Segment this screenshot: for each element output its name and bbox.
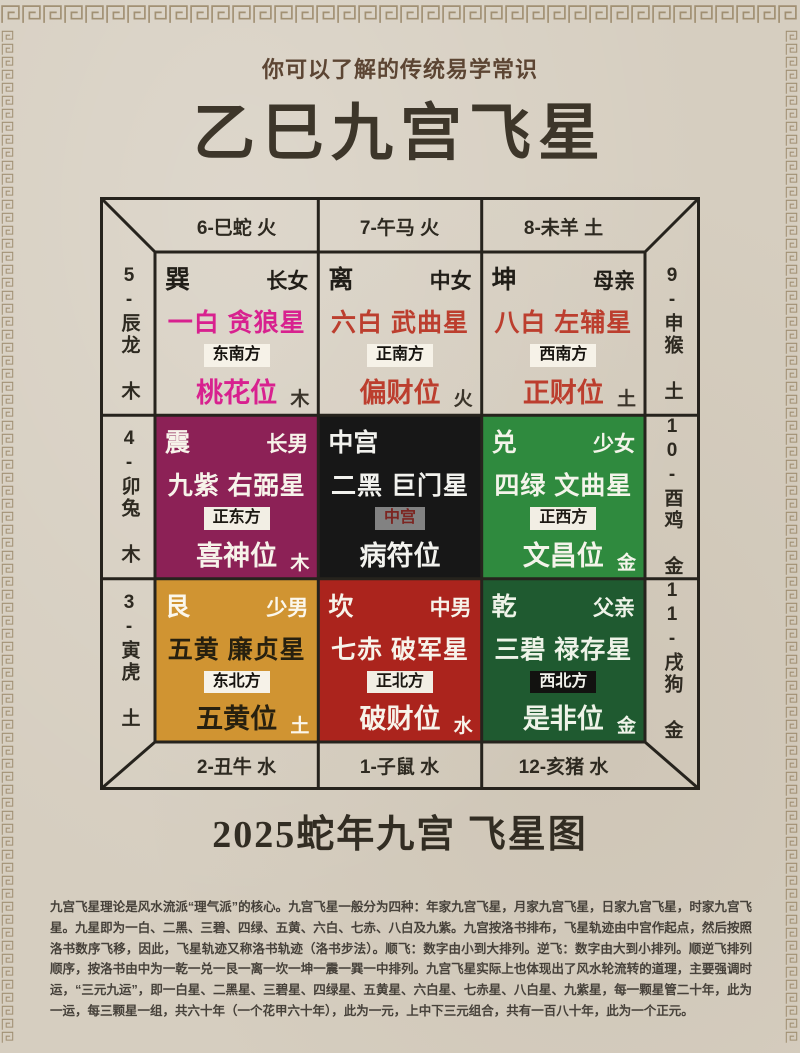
meander-border-top-icon (0, 4, 800, 28)
element-label: 水 (454, 711, 473, 738)
element-label: 火 (454, 384, 473, 411)
palace-cell-zhen: 震长男 九紫 右弼星 正东方 喜神位 主姻缘、感情 木 (155, 415, 318, 578)
person-label: 长女 (266, 265, 308, 295)
star-label: 七赤 破军星 (328, 630, 471, 666)
direction-badge: 正西方 (530, 507, 596, 530)
palace-cell-kan: 坎中男 七赤 破军星 正北方 破财位 主破财、败运 水 (318, 579, 481, 742)
element-label: 土 (290, 711, 309, 738)
element-label: 木 (290, 548, 309, 575)
palace-cell-dui: 兑少女 四绿 文曲星 正西方 文昌位 主事业、学业 金 (482, 415, 645, 578)
meander-border-left-icon (1, 30, 15, 1050)
position-label: 五黄位 (165, 697, 308, 736)
star-label: 四绿 文曲星 (492, 466, 635, 502)
palace-cell-gen: 艮少男 五黄 廉贞星 东北方 五黄位 主凶灾、祸患 土 (155, 579, 318, 742)
page-subtitle: 你可以了解的传统易学常识 (0, 52, 800, 84)
meaning-label: 主破财、败运 (328, 738, 471, 742)
trigram-label: 坤 (492, 260, 517, 296)
element-label: 木 (290, 384, 309, 411)
palace-cell-center: 中宫 二黑 巨门星 中宫 病符位 主疾病、伤痛 (318, 415, 481, 578)
star-label: 一白 贪狼星 (165, 303, 308, 339)
palace-grid: 巽长女 一白 贪狼星 东南方 桃花位 主感情、人缘 木 离中女 六白 武曲星 正… (155, 252, 645, 742)
zodiac-label-top-3: 8-未羊 土 (482, 205, 645, 247)
caption: 2025蛇年九宫 飞星图 (0, 803, 800, 858)
direction-badge: 正北方 (367, 671, 433, 694)
direction-badge: 东南方 (204, 344, 270, 367)
zodiac-label-right-1: 9-申猴 土 (649, 252, 695, 415)
nine-palace-board: 6-巳蛇 火 7-午马 火 8-未羊 土 2-丑牛 水 1-子鼠 水 12-亥猪… (100, 197, 700, 790)
zodiac-label-bottom-2: 1-子鼠 水 (318, 744, 481, 786)
palace-cell-kun: 坤母亲 八白 左辅星 西南方 正财位 主财运、置业 土 (482, 252, 645, 415)
zodiac-label-right-2: 10-酉鸡 金 (649, 415, 695, 578)
trigram-label: 乾 (492, 587, 517, 623)
direction-badge: 正南方 (367, 344, 433, 367)
palace-cell-xun: 巽长女 一白 贪狼星 东南方 桃花位 主感情、人缘 木 (155, 252, 318, 415)
element-label: 金 (617, 711, 636, 738)
person-label: 少男 (266, 592, 308, 622)
direction-badge: 中宫 (375, 507, 425, 530)
zodiac-label-top-1: 6-巳蛇 火 (155, 205, 318, 247)
zodiac-label-bottom-3: 12-亥猪 水 (482, 744, 645, 786)
position-label: 正财位 (492, 371, 635, 410)
meaning-label: 主是非、官灾 (492, 738, 635, 742)
star-label: 六白 武曲星 (328, 303, 471, 339)
direction-badge: 西北方 (530, 671, 596, 694)
zodiac-label-left-2: 4-卯兔 木 (106, 415, 152, 578)
direction-badge: 正东方 (204, 507, 270, 530)
star-label: 八白 左辅星 (492, 303, 635, 339)
position-label: 文昌位 (492, 534, 635, 573)
trigram-label: 巽 (165, 260, 190, 296)
position-label: 破财位 (328, 697, 471, 736)
poster: 你可以了解的传统易学常识 乙巳九宫飞星 6-巳蛇 火 7-午马 火 8-未羊 土… (0, 0, 800, 1053)
trigram-label: 坎 (328, 587, 353, 623)
direction-badge: 西南方 (530, 344, 596, 367)
person-label: 母亲 (593, 265, 635, 295)
trigram-label: 离 (328, 260, 353, 296)
person-label: 中男 (430, 592, 472, 622)
element-label: 金 (617, 548, 636, 575)
zodiac-label-left-1: 5-辰龙 木 (106, 252, 152, 415)
person-label: 中女 (430, 265, 472, 295)
zodiac-label-left-3: 3-寅虎 土 (106, 579, 152, 742)
position-label: 偏财位 (328, 371, 471, 410)
meander-border-right-icon (785, 30, 799, 1050)
position-label: 是非位 (492, 697, 635, 736)
position-label: 病符位 (328, 534, 471, 573)
element-label: 土 (617, 384, 636, 411)
zodiac-label-top-2: 7-午马 火 (318, 205, 481, 247)
palace-cell-li: 离中女 六白 武曲星 正南方 偏财位 主横财、贵人 火 (318, 252, 481, 415)
star-label: 三碧 禄存星 (492, 630, 635, 666)
palace-cell-qian: 乾父亲 三碧 禄存星 西北方 是非位 主是非、官灾 金 (482, 579, 645, 742)
direction-badge: 东北方 (204, 671, 270, 694)
star-label: 二黑 巨门星 (328, 466, 471, 502)
person-label: 少女 (593, 428, 635, 458)
zodiac-label-right-3: 11-戌狗 金 (649, 579, 695, 742)
star-label: 五黄 廉贞星 (165, 630, 308, 666)
trigram-label: 中宫 (328, 423, 378, 459)
description-paragraph: 九宫飞星理论是风水流派“理气派”的核心。九宫飞星一般分为四种：年家九宫飞星，月家… (50, 897, 752, 1022)
position-label: 桃花位 (165, 371, 308, 410)
person-label: 长男 (266, 428, 308, 458)
meaning-label: 主凶灾、祸患 (165, 738, 308, 742)
zodiac-label-bottom-1: 2-丑牛 水 (155, 744, 318, 786)
position-label: 喜神位 (165, 534, 308, 573)
person-label: 父亲 (593, 592, 635, 622)
page-title: 乙巳九宫飞星 (0, 82, 800, 172)
star-label: 九紫 右弼星 (165, 466, 308, 502)
trigram-label: 兑 (492, 423, 517, 459)
trigram-label: 艮 (165, 587, 190, 623)
trigram-label: 震 (165, 423, 190, 459)
